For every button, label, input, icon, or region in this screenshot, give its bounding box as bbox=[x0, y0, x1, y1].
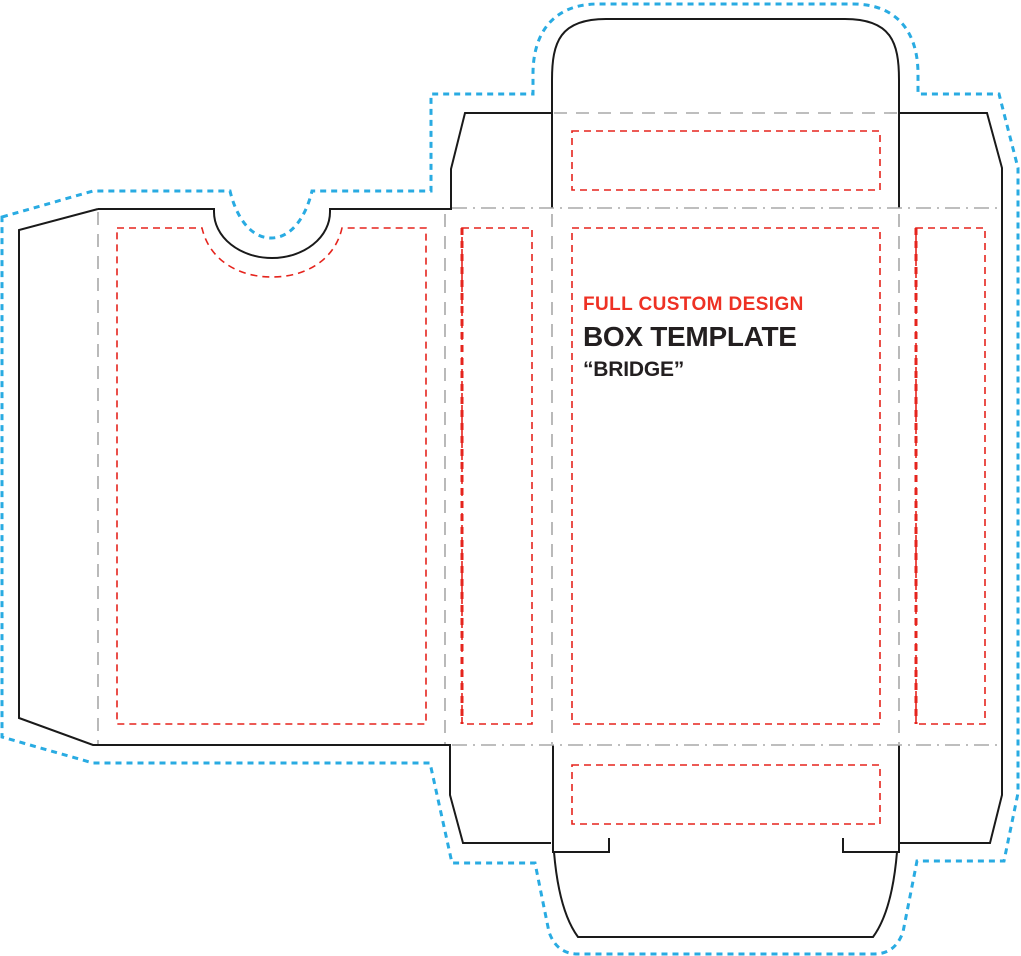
box-template-dieline: FULL CUSTOM DESIGN BOX TEMPLATE “BRIDGE” bbox=[0, 0, 1021, 956]
cut-bottom-tuck-flap-path bbox=[554, 852, 897, 937]
die-template-svg bbox=[0, 0, 1021, 956]
safe-back-panel bbox=[117, 228, 426, 724]
cut-bottom-panel-left-slit-path bbox=[553, 745, 609, 852]
template-kicker-text: FULL CUSTOM DESIGN bbox=[583, 295, 804, 314]
cut-right-dust-flaps-and-edge-path bbox=[899, 113, 1002, 843]
cut-glue-tab-and-bottom-path bbox=[19, 209, 551, 843]
safe-left-side-panel bbox=[462, 228, 532, 724]
safe-bottom-panel bbox=[572, 765, 880, 824]
safe-right-side-panel bbox=[916, 228, 985, 724]
cut-outline bbox=[19, 19, 1002, 937]
cut-back-panel-top-thumb-notch-path bbox=[98, 113, 552, 258]
fold-lines bbox=[98, 113, 1002, 745]
bleed-outline bbox=[2, 4, 1018, 954]
title-block: FULL CUSTOM DESIGN BOX TEMPLATE “BRIDGE” bbox=[583, 295, 804, 380]
bleed-path bbox=[2, 4, 1018, 954]
safe-lid-panel bbox=[572, 131, 880, 190]
cut-bottom-panel-right-slit-path bbox=[843, 745, 899, 852]
safe-area-lines bbox=[117, 131, 985, 824]
template-style-text: “BRIDGE” bbox=[583, 359, 804, 380]
template-title-text: BOX TEMPLATE bbox=[583, 323, 804, 351]
